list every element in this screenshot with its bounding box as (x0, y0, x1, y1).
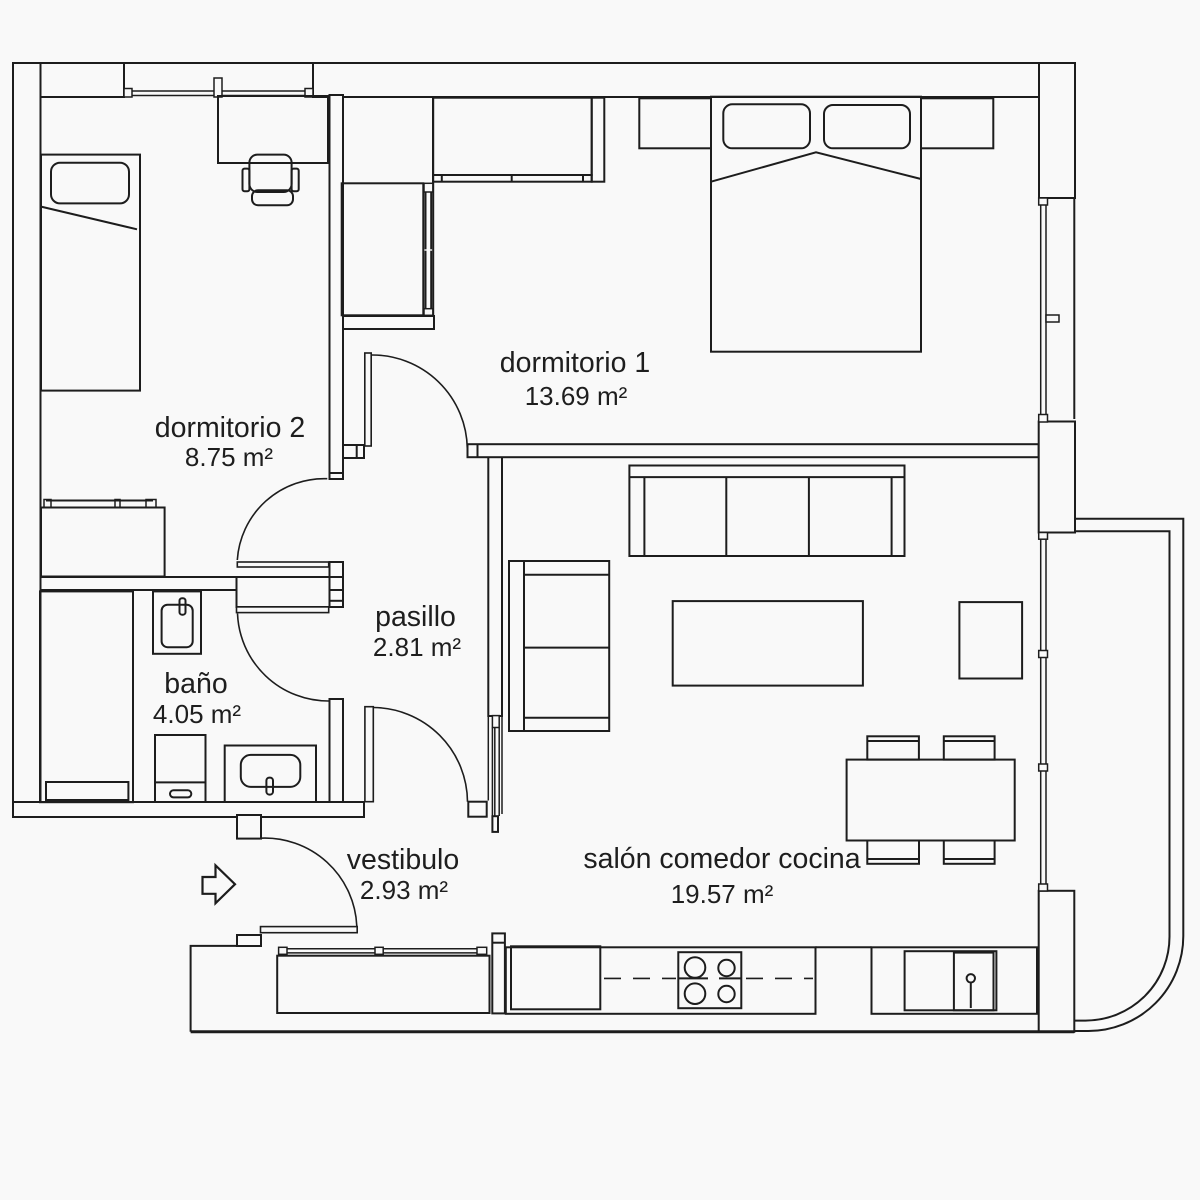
svg-text:8.75 m²: 8.75 m² (185, 442, 273, 472)
svg-text:4.05 m²: 4.05 m² (153, 699, 241, 729)
svg-text:salón comedor cocina: salón comedor cocina (583, 843, 860, 875)
svg-text:2.81 m²: 2.81 m² (373, 632, 461, 662)
svg-text:baño: baño (164, 668, 227, 700)
svg-text:dormitorio 2: dormitorio 2 (155, 412, 305, 444)
svg-text:vestibulo: vestibulo (347, 844, 459, 876)
svg-text:13.69 m²: 13.69 m² (525, 381, 628, 411)
svg-text:pasillo: pasillo (375, 601, 456, 633)
svg-text:dormitorio 1: dormitorio 1 (500, 347, 650, 379)
svg-text:2.93 m²: 2.93 m² (360, 875, 448, 905)
svg-text:19.57 m²: 19.57 m² (671, 879, 774, 909)
